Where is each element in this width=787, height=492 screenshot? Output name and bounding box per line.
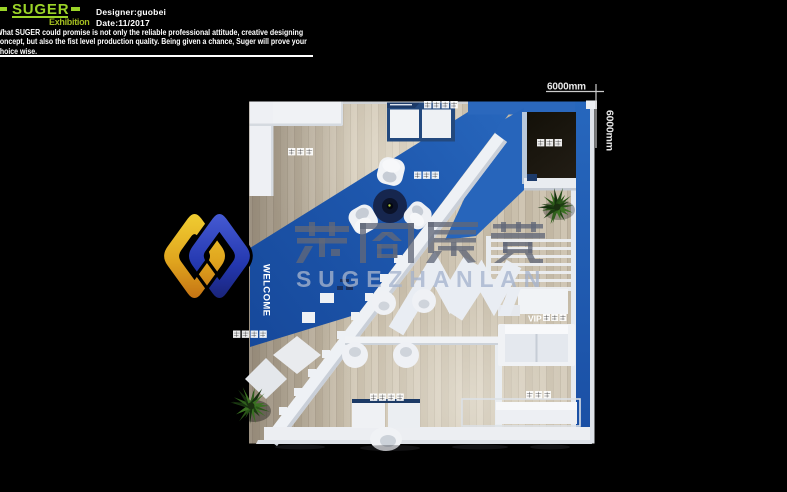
svg-text:SUGEZHANLAN: SUGEZHANLAN [296,266,547,292]
svg-text:6000mm: 6000mm [547,82,586,93]
svg-text:VIP: VIP [528,314,542,324]
svg-text:6000mm: 6000mm [604,110,616,151]
svg-text:WELCOME: WELCOME [261,264,272,316]
